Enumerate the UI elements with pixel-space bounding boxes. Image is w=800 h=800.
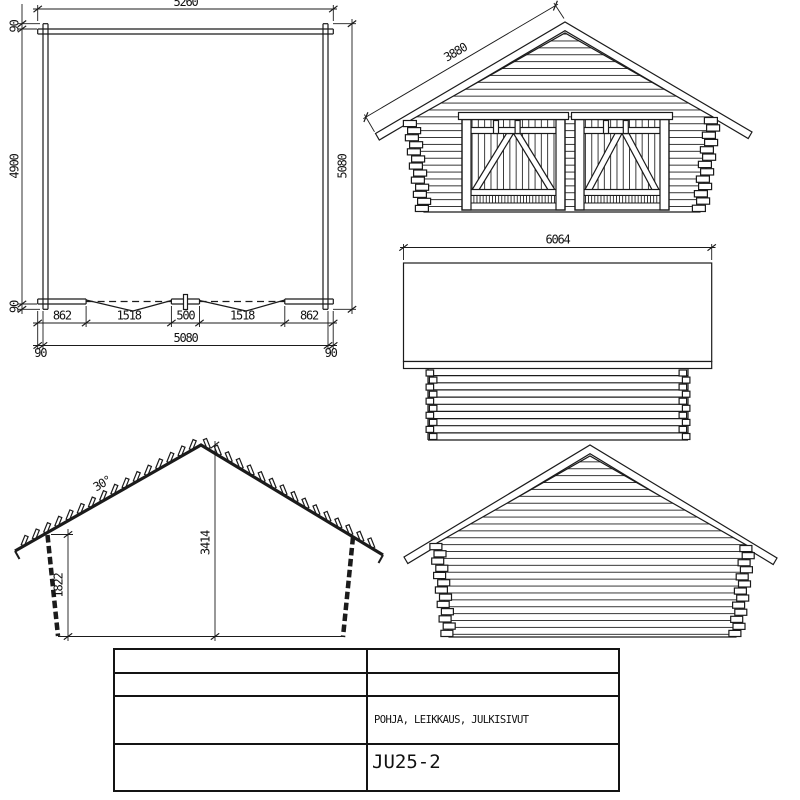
log-end — [696, 176, 709, 182]
front-elevation-view: 3880 — [361, 1, 752, 212]
log-end — [434, 551, 446, 557]
model-code: JU25-2 — [372, 751, 441, 773]
roof-edge-band — [404, 362, 712, 369]
drawing-title: POHJA, LEIKKAUS, JULKISIVUT — [374, 714, 528, 726]
rear-log-wall — [437, 456, 748, 637]
dim-label-right-total: 5080 — [336, 153, 350, 178]
log-end — [702, 132, 715, 138]
log-end — [407, 149, 420, 155]
log-end — [692, 205, 705, 211]
log-end — [435, 587, 447, 593]
log-end — [414, 170, 427, 176]
drawing-sheet: 5260 90 4900 90 5080 862 1518 500 1518 8… — [0, 0, 800, 800]
dim-label-plan-top: 5260 — [173, 0, 198, 9]
log-end — [436, 565, 448, 571]
log-end — [739, 581, 751, 587]
log-end — [438, 580, 450, 586]
log-end — [411, 177, 424, 183]
log-end — [679, 370, 687, 376]
log-end — [731, 616, 743, 622]
log-end — [682, 405, 690, 411]
log-end — [429, 377, 437, 383]
log-end — [439, 616, 451, 622]
log-end — [694, 191, 707, 197]
roof-panel — [404, 263, 712, 362]
log-end — [740, 567, 752, 573]
title-block: POHJA, LEIKKAUS, JULKISIVUT JU25-2 — [113, 648, 620, 792]
log-end — [735, 609, 747, 615]
dim-label-seg-5: 862 — [300, 309, 319, 323]
section-dimensions — [51, 441, 219, 641]
dim-label-bottom-total: 5080 — [173, 331, 198, 345]
log-end — [415, 205, 428, 211]
dim-label-roof-length: 6064 — [545, 233, 570, 247]
log-end — [697, 198, 710, 204]
log-end — [410, 142, 423, 148]
log-end — [679, 412, 687, 418]
log-end — [699, 183, 712, 189]
dim-label-left-end-bottom: 90 — [8, 300, 22, 313]
log-end — [408, 128, 421, 134]
log-end — [426, 412, 434, 418]
dim-label-eave-height: 1822 — [52, 572, 66, 597]
log-end — [679, 426, 687, 432]
dim-label-seg-2: 1518 — [117, 309, 142, 323]
dim-label-left-inner: 4900 — [8, 153, 22, 178]
dim-label-seg-3: 500 — [176, 309, 195, 323]
log-end — [432, 558, 444, 564]
front-double-doors — [459, 113, 673, 211]
log-end — [413, 191, 426, 197]
log-end — [701, 169, 714, 175]
log-end — [429, 419, 437, 425]
dim-label-roof-slope: 3880 — [441, 40, 470, 65]
center-door-post — [184, 295, 188, 310]
log-end — [737, 595, 749, 601]
log-end — [426, 398, 434, 404]
floor-plan-view: 5260 90 4900 90 5080 862 1518 500 1518 8… — [8, 0, 357, 360]
log-end — [426, 370, 434, 376]
roof-side-view: 6064 — [399, 233, 716, 441]
log-end — [437, 601, 449, 607]
log-end — [429, 391, 437, 397]
dim-label-bottom-end-right: 90 — [325, 346, 338, 360]
log-end — [734, 588, 746, 594]
log-end — [443, 623, 455, 629]
side-log-wall — [428, 369, 688, 441]
log-end — [416, 184, 429, 190]
log-end — [733, 602, 745, 608]
log-end — [740, 546, 752, 552]
log-end — [412, 156, 425, 162]
log-end — [405, 135, 418, 141]
log-end — [682, 434, 690, 440]
log-end — [704, 118, 717, 124]
log-end — [430, 544, 442, 550]
log-end — [729, 630, 741, 636]
section-wall-right — [343, 537, 353, 637]
log-end — [440, 594, 452, 600]
log-end — [682, 377, 690, 383]
dim-label-seg-1: 862 — [53, 309, 72, 323]
dim-label-ridge-height: 3414 — [199, 530, 213, 555]
log-end — [441, 630, 453, 636]
log-end — [682, 419, 690, 425]
log-end — [733, 623, 745, 629]
dim-label-bottom-end-left: 90 — [34, 346, 47, 360]
log-end — [698, 161, 711, 167]
rear-elevation-view — [404, 445, 777, 637]
dim-label-left-end-top: 90 — [8, 20, 22, 33]
log-end — [736, 574, 748, 580]
log-end — [738, 560, 750, 566]
log-end — [426, 384, 434, 390]
log-end — [426, 426, 434, 432]
log-end — [403, 121, 416, 127]
log-end — [418, 198, 431, 204]
log-end — [679, 398, 687, 404]
log-end — [679, 384, 687, 390]
log-end — [434, 572, 446, 578]
title-block-column-divider — [366, 650, 368, 790]
log-end — [707, 125, 720, 131]
dim-label-roof-pitch: 30° — [91, 473, 114, 494]
log-end — [703, 154, 716, 160]
log-end — [429, 434, 437, 440]
log-end — [429, 405, 437, 411]
log-end — [441, 609, 453, 615]
log-end — [742, 553, 754, 559]
log-end — [682, 391, 690, 397]
dim-label-seg-4: 1518 — [230, 309, 255, 323]
cross-section-view: 30° 3414 1822 — [15, 438, 383, 641]
log-end — [409, 163, 422, 169]
log-end — [705, 139, 718, 145]
log-end — [700, 147, 713, 153]
